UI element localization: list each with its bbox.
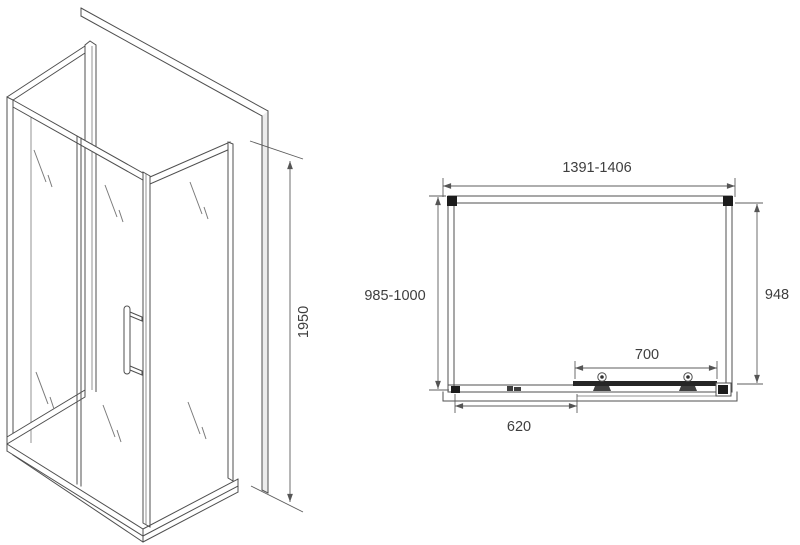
door-track-assembly	[443, 373, 737, 401]
extension-line	[250, 141, 303, 159]
glass-reflection-icon	[105, 185, 123, 222]
left-panel-top-rail	[7, 46, 85, 104]
shower-tray	[7, 444, 238, 542]
height-dimension-label: 1950	[296, 306, 312, 338]
front-sliding-door	[13, 100, 150, 527]
door-width-dimension: 700	[575, 347, 717, 379]
height-dimension: 1950	[250, 141, 312, 512]
side-panel-right	[150, 142, 233, 481]
wall-profile-left	[447, 196, 457, 206]
glass-reflection-icon	[190, 182, 208, 219]
door-handle	[124, 306, 142, 375]
width-dimension-label: 1391-1406	[562, 160, 631, 176]
left-depth-dimension-label: 985-1000	[364, 288, 425, 304]
glass-reflection-icons	[34, 150, 208, 442]
left-depth-dimension: 985-1000	[364, 196, 449, 390]
plan-view: 1391-1406 985-1000 948 700 6	[364, 160, 789, 435]
door-stopper	[716, 383, 731, 396]
glass-reflection-icon	[34, 150, 52, 187]
right-depth-dimension: 948	[735, 203, 789, 384]
track-end-cap	[451, 386, 460, 393]
track-hardware	[507, 386, 521, 391]
width-dimension: 1391-1406	[443, 160, 735, 197]
fixed-panel-width-dimension-label: 620	[507, 419, 531, 435]
sliding-door-bar	[573, 381, 717, 386]
glass-reflection-icon	[36, 372, 54, 409]
right-depth-dimension-label: 948	[765, 287, 789, 303]
corner-post-back-right	[228, 142, 233, 481]
wall-post-back-left	[85, 41, 96, 392]
corner-post-front-left	[7, 97, 13, 440]
glass-reflection-icon	[103, 405, 121, 442]
fixed-panel-width-dimension: 620	[455, 394, 577, 435]
door-leading-edge	[143, 172, 150, 527]
wall-profile-right	[723, 196, 733, 206]
glass-reflection-icon	[188, 402, 206, 439]
extension-line	[251, 486, 303, 512]
shower-enclosure-drawing: 1950	[0, 0, 800, 545]
door-width-dimension-label: 700	[635, 347, 659, 363]
track-outer-edge	[443, 392, 737, 401]
right-panel-top-rail	[150, 142, 230, 184]
isometric-view: 1950	[7, 8, 312, 542]
technical-drawing-page: 1950	[0, 0, 800, 545]
plan-walls	[447, 196, 733, 392]
